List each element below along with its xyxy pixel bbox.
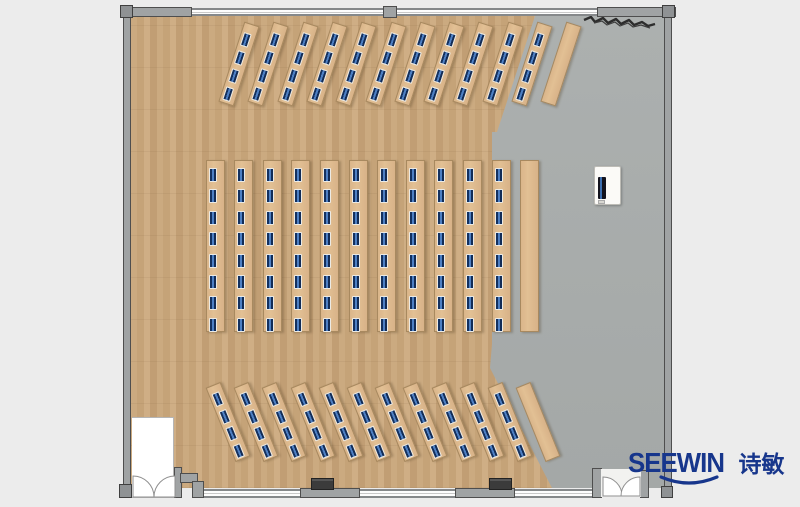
double-door-left-leaf-a bbox=[133, 476, 154, 497]
doors-layer bbox=[0, 0, 800, 507]
double-door-left-leaf-b bbox=[154, 476, 175, 497]
logo-smile-icon bbox=[658, 474, 720, 490]
seewin-logo: SEEWIN 诗敏 bbox=[628, 448, 800, 490]
logo-text-chinese: 诗敏 bbox=[738, 448, 784, 480]
floorplan-canvas: SEEWIN 诗敏 bbox=[0, 0, 800, 507]
